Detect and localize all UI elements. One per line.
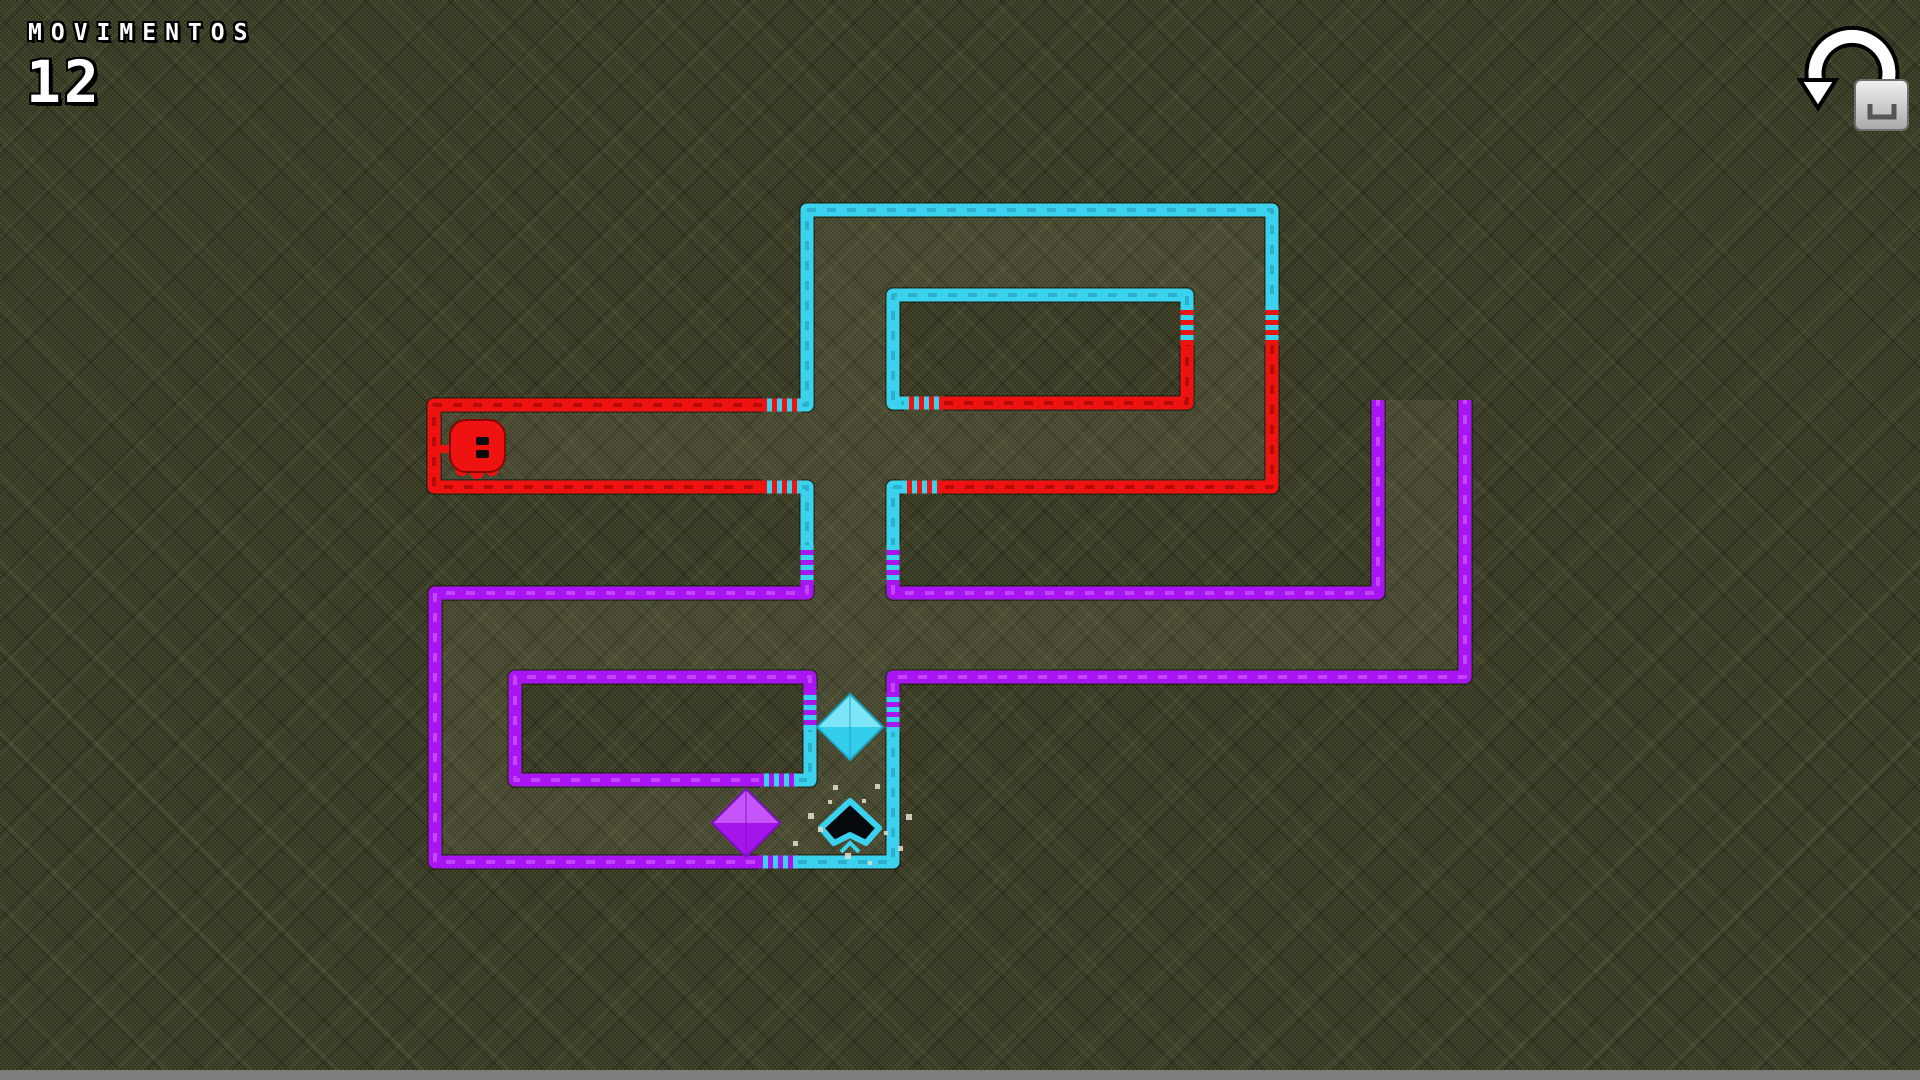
bottom-bar: [0, 1070, 1920, 1080]
moves-value: 12: [26, 48, 102, 116]
moves-label: MOVIMENTOS: [28, 20, 256, 46]
game-root: MOVIMENTOS 12: [0, 0, 1920, 1080]
restart-key-icon: [1855, 80, 1908, 130]
restart-arrow-icon: [1793, 8, 1915, 138]
restart-button[interactable]: [1793, 8, 1915, 138]
corridor-floors: [428, 210, 1465, 862]
wires-layer: [434, 210, 1465, 862]
maze-canvas[interactable]: [0, 0, 1920, 1080]
